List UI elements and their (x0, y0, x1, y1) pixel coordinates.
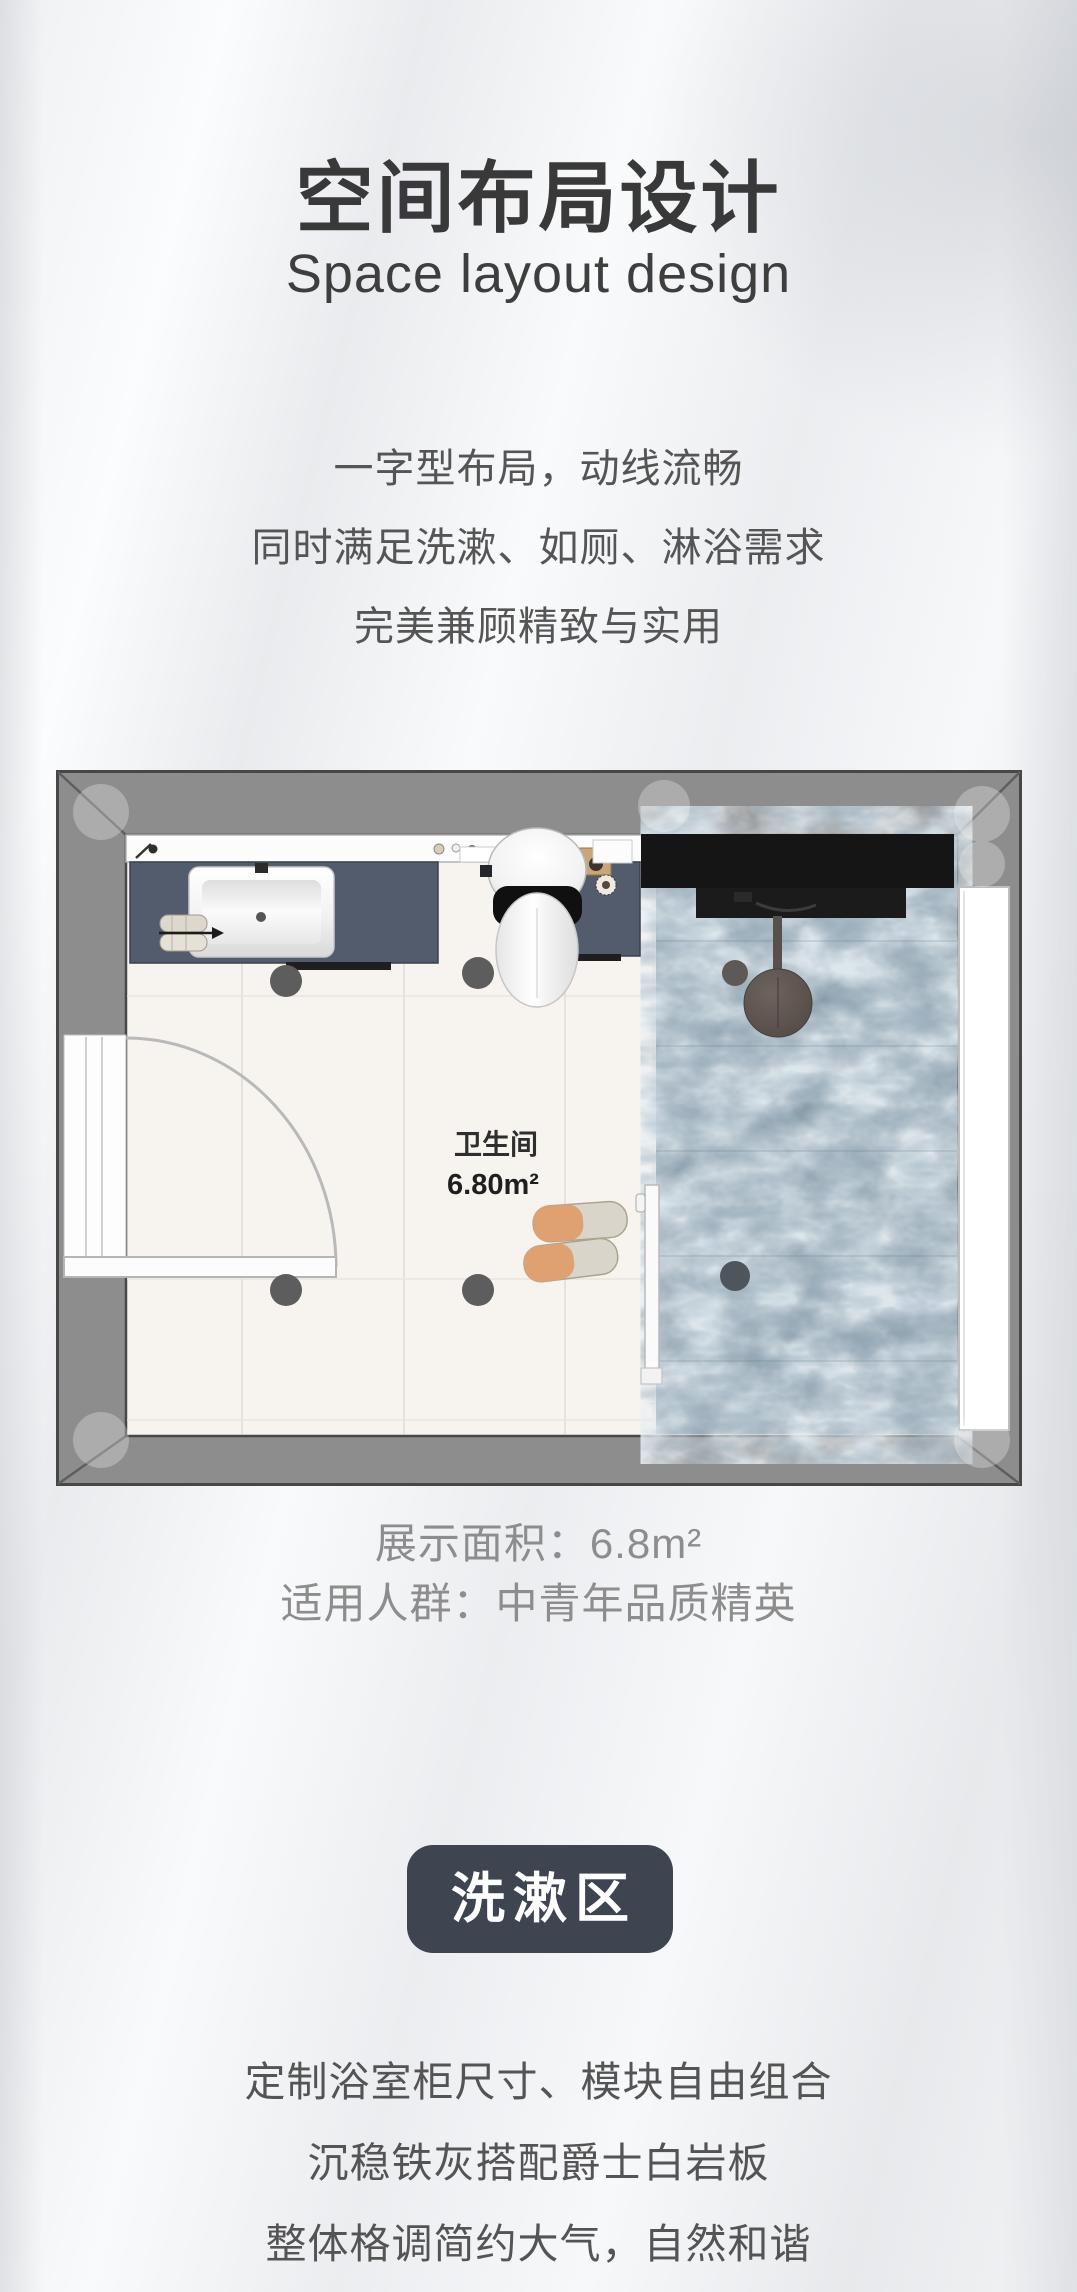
intro-text: 一字型布局，动线流畅 同时满足洗漱、如厕、淋浴需求 完美兼顾精致与实用 (0, 430, 1077, 667)
floor-plan-svg: 卫生间 6.80m² (56, 770, 1022, 1486)
sink-drain (256, 912, 266, 922)
shower-knob (722, 960, 748, 986)
intro-line-2: 同时满足洗漱、如厕、淋浴需求 (0, 509, 1077, 588)
feature-text: 定制浴室柜尺寸、模块自由组合 沉稳铁灰搭配爵士白岩板 整体格调简约大气，自然和谐 (0, 2042, 1077, 2285)
spec-line-audience: 适用人群：中青年品质精英 (0, 1574, 1077, 1634)
feature-line-2: 沉稳铁灰搭配爵士白岩板 (0, 2123, 1077, 2204)
section-badge: 洗漱区 (407, 1845, 673, 1953)
feature-line-3: 整体格调简约大气，自然和谐 (0, 2204, 1077, 2285)
door-leaf (64, 1257, 336, 1277)
sink (189, 863, 334, 957)
intro-line-3: 完美兼顾精致与实用 (0, 588, 1077, 667)
window (959, 887, 1009, 1430)
spec-text: 展示面积：6.8m² 适用人群：中青年品质精英 (0, 1514, 1077, 1634)
page-title: 空间布局设计 (0, 136, 1077, 248)
vanity-counter (130, 862, 438, 970)
spec-line-area: 展示面积：6.8m² (0, 1514, 1077, 1574)
room-area-label: 6.80m² (447, 1169, 539, 1201)
shower-marble-floor (652, 836, 957, 1434)
floor-plan: 卫生间 6.80m² (56, 770, 1022, 1486)
page-subtitle: Space layout design (0, 243, 1077, 305)
intro-line-1: 一字型布局，动线流畅 (0, 430, 1077, 509)
sink-faucet (255, 863, 268, 873)
room-label: 卫生间 (454, 1129, 538, 1160)
feature-line-1: 定制浴室柜尺寸、模块自由组合 (0, 2042, 1077, 2123)
